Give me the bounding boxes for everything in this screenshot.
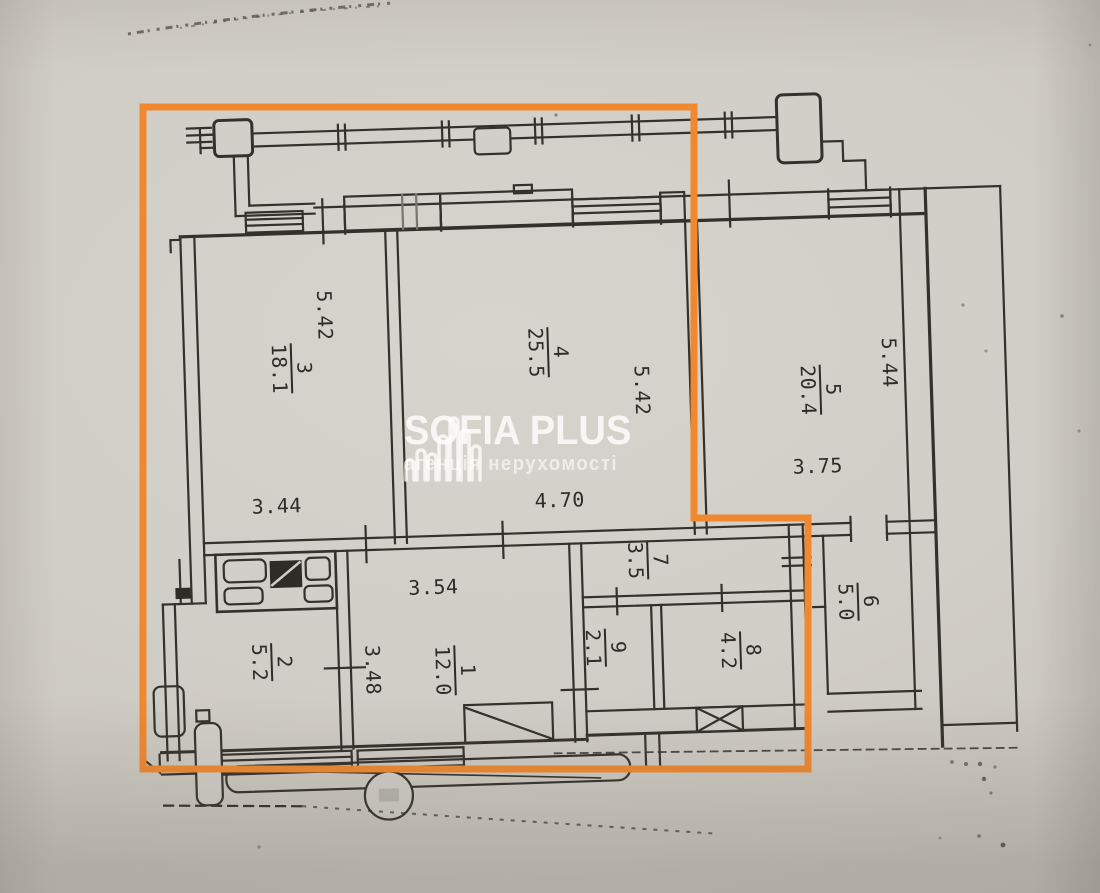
floorplan-photo: 1 12.0 2 5.2 3 18.1 4 25.5 5 20.4 6 5.0 xyxy=(0,0,1100,893)
highlight-outline xyxy=(0,0,1100,893)
